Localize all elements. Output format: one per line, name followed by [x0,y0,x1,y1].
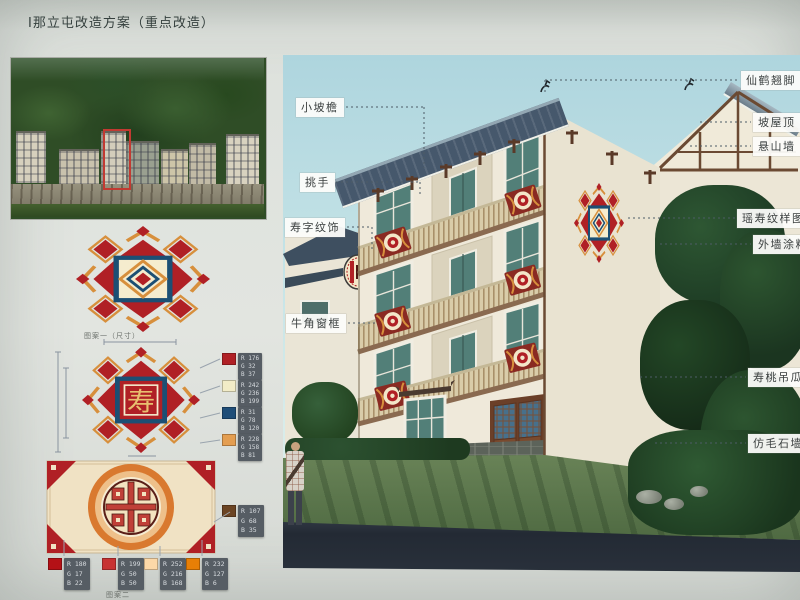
pedestrian-head [291,442,300,451]
label-slope-roof: 坡屋顶 [753,113,800,132]
design-board: Ⅰ那立屯改造方案（重点改造） 图案一（尺寸） 寿 R 176G 32B 37 R… [0,0,800,600]
yao-star-wall-pattern [574,183,624,263]
pedestrian-leg [288,491,294,525]
label-exterior-paint: 外墙涂料 [753,235,800,254]
pedestrian-jacket [286,451,304,491]
pedestrian-leg [296,491,302,525]
rock [636,490,662,504]
label-small-eave: 小坡檐 [296,98,344,117]
label-oxhorn-window-frame: 牛角窗框 [286,314,346,333]
label-yao-pattern: 瑶寿纹样图案 [737,209,800,228]
label-stone-wainscot: 仿毛石墙裙 [748,434,800,453]
label-hanging-column: 寿桃吊瓜柱 [748,368,800,387]
rock [690,486,708,497]
hedge [285,438,470,460]
label-shou-ornament: 寿字纹饰 [285,218,345,237]
tree [292,382,358,444]
label-crane-corner: 仙鹤翘脚 [741,71,800,90]
pedestrian [280,440,310,530]
rock [664,498,684,510]
label-bracket: 挑手 [300,173,335,192]
building-rendering [0,0,800,600]
label-gable-wall: 悬山墙 [753,137,800,156]
